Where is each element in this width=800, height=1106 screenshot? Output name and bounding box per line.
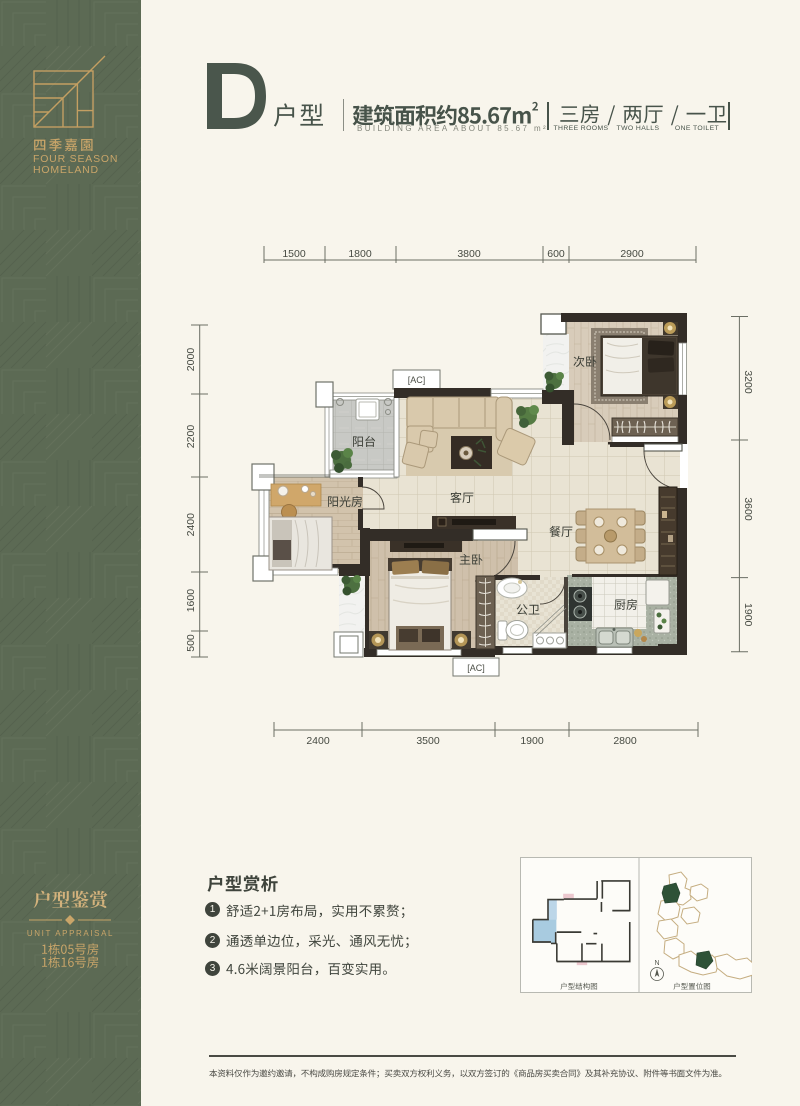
svg-text:1900: 1900	[742, 603, 754, 627]
svg-text:1500: 1500	[282, 248, 306, 260]
svg-text:2000: 2000	[185, 348, 197, 372]
svg-text:2800: 2800	[613, 735, 637, 747]
svg-text:1600: 1600	[185, 589, 197, 613]
svg-text:3200: 3200	[742, 370, 754, 394]
svg-text:1800: 1800	[348, 248, 372, 260]
svg-text:3800: 3800	[457, 248, 481, 260]
svg-text:2200: 2200	[185, 425, 197, 449]
svg-text:1900: 1900	[520, 735, 544, 747]
svg-text:600: 600	[547, 248, 565, 260]
svg-text:[AC]: [AC]	[408, 375, 426, 385]
svg-text:3600: 3600	[742, 497, 754, 521]
svg-text:3500: 3500	[416, 735, 440, 747]
svg-text:2400: 2400	[185, 513, 197, 537]
svg-text:2400: 2400	[306, 735, 330, 747]
svg-text:N: N	[654, 960, 659, 967]
svg-text:[AC]: [AC]	[467, 663, 485, 673]
svg-text:2900: 2900	[620, 248, 644, 260]
svg-text:500: 500	[185, 634, 197, 652]
